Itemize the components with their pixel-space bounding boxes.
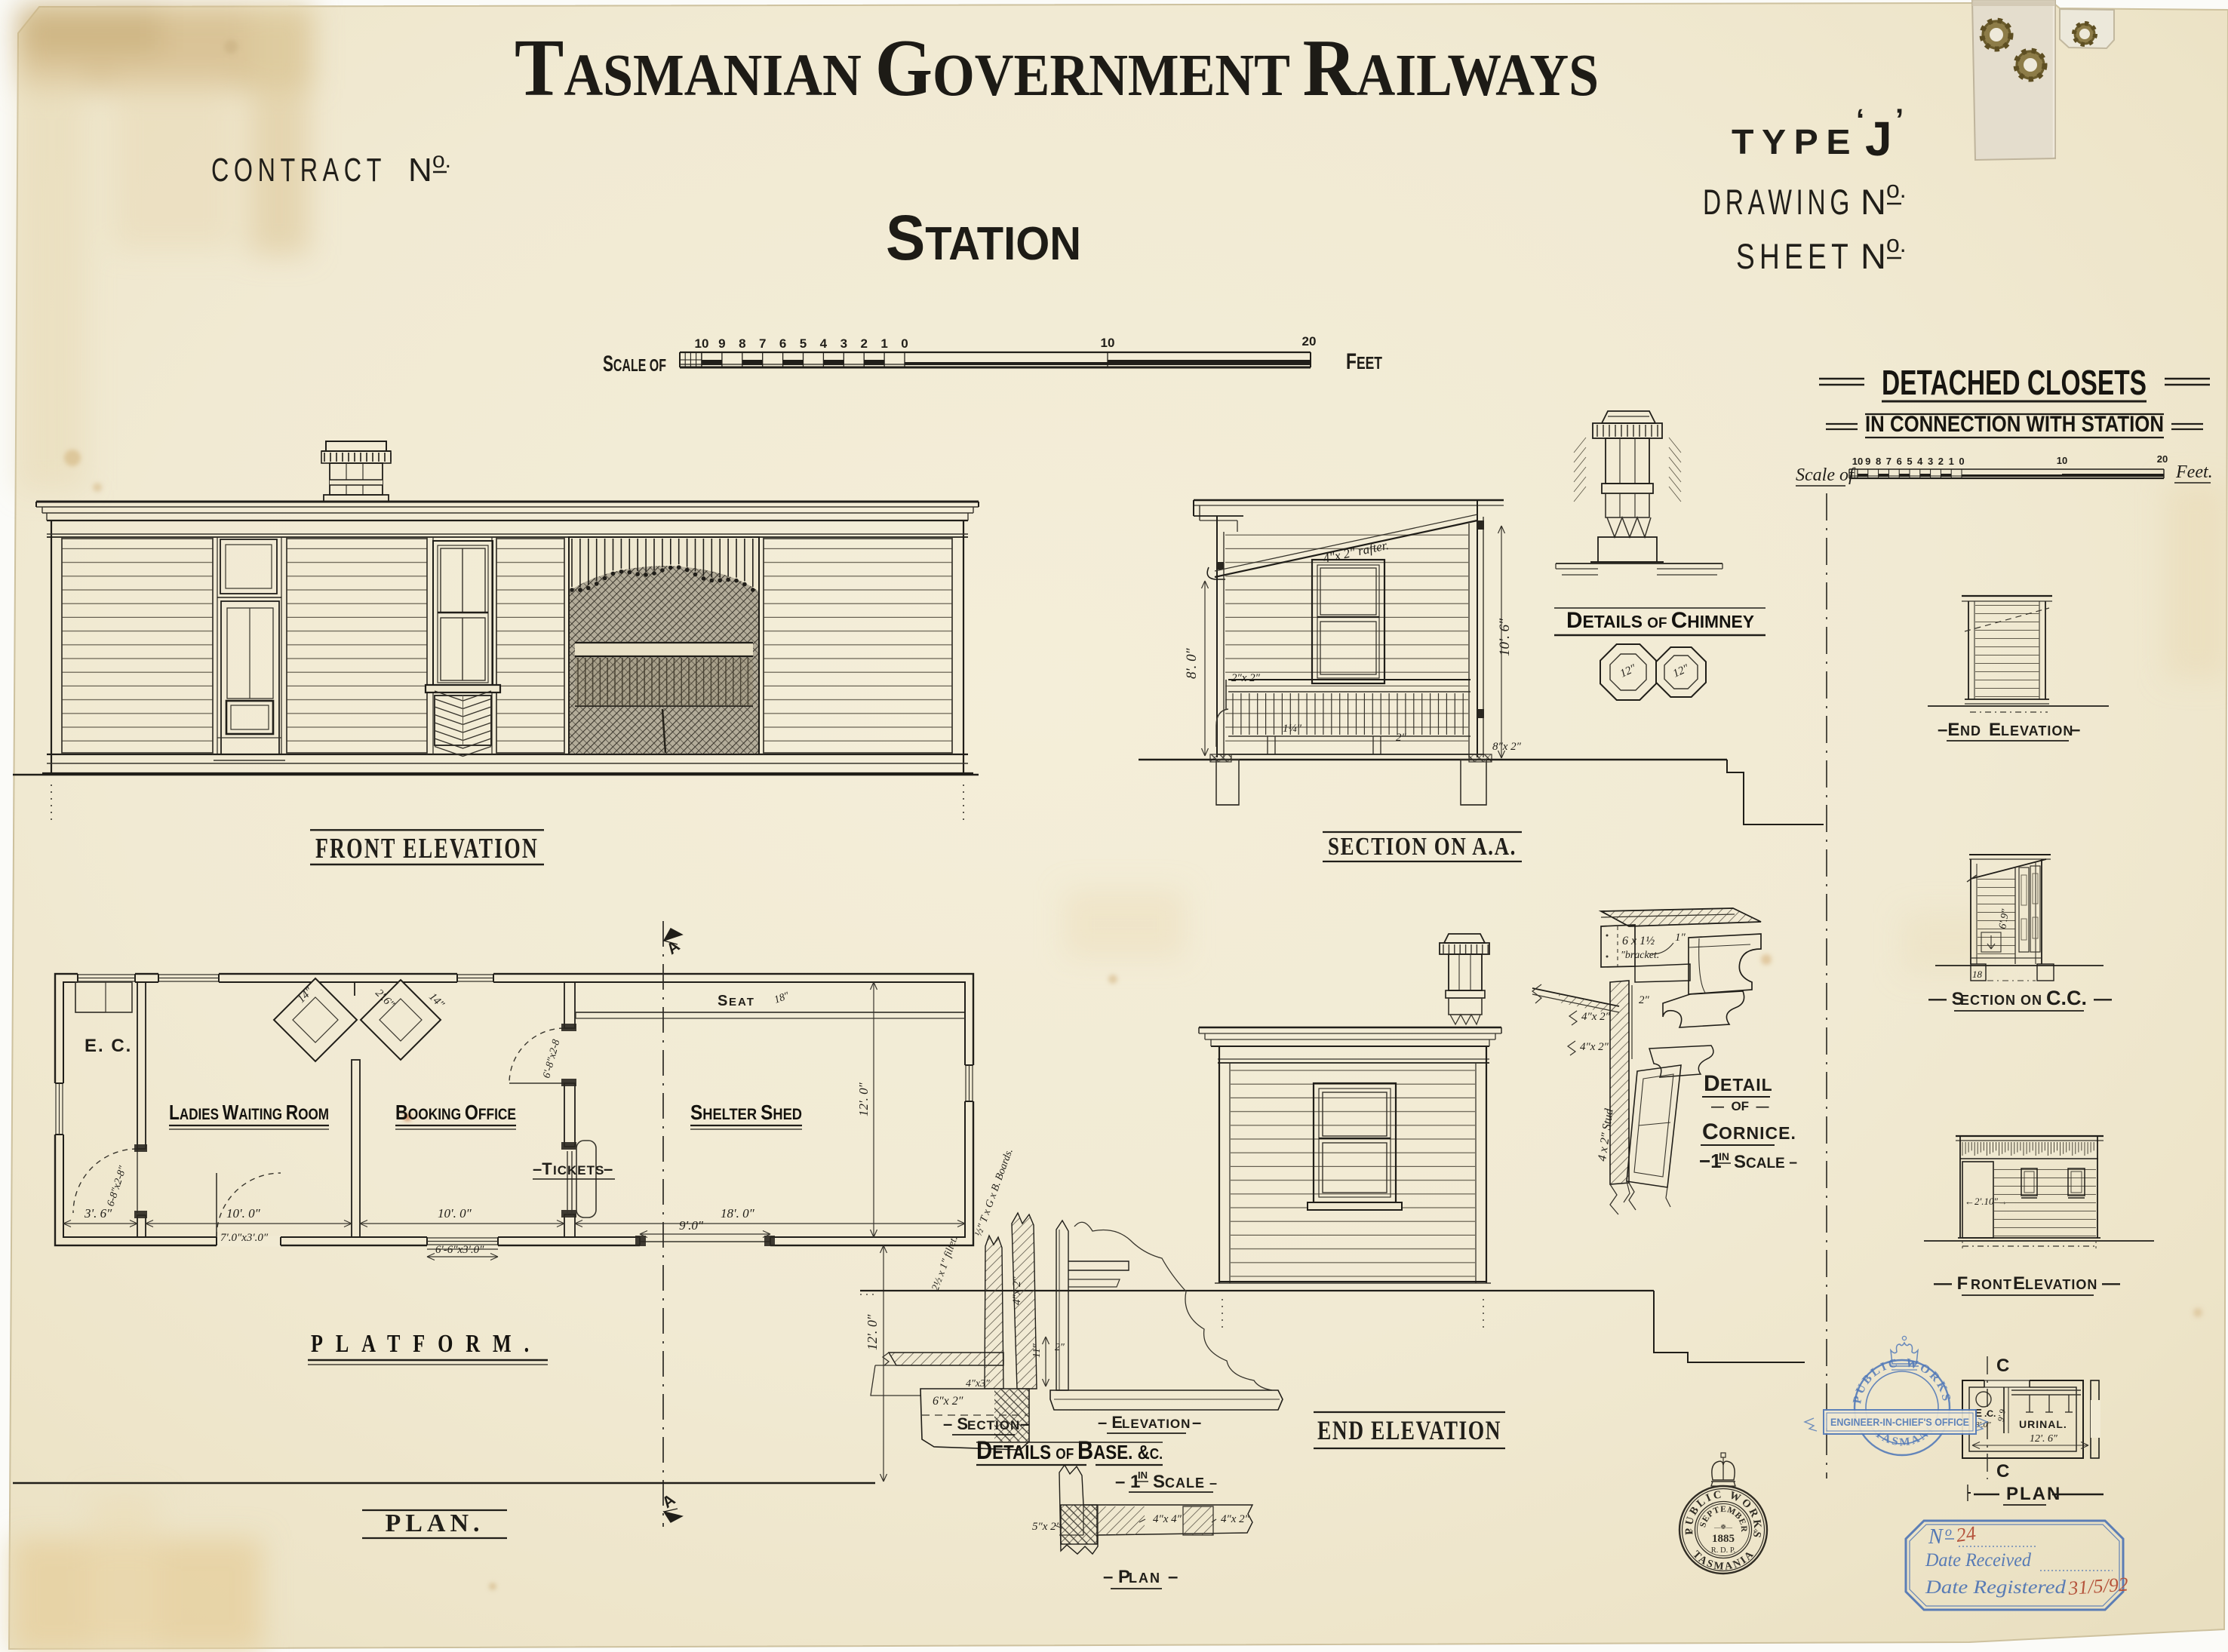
- svg-text:10: 10: [695, 336, 709, 351]
- svg-text:N: N: [408, 152, 432, 189]
- svg-text:C: C: [1996, 1356, 2009, 1376]
- svg-text:– S: – S: [943, 1414, 968, 1433]
- svg-text:ECTION ON: ECTION ON: [1960, 993, 2047, 1008]
- svg-text:LEVATION: LEVATION: [2025, 1277, 2097, 1292]
- svg-text:FRONT ELEVATION: FRONT ELEVATION: [315, 833, 539, 864]
- svg-text:—: —: [2102, 1273, 2120, 1294]
- svg-text:Feet.: Feet.: [2175, 462, 2213, 482]
- svg-text:DRAWING: DRAWING: [1703, 182, 1854, 222]
- svg-text:6: 6: [1897, 456, 1902, 467]
- svg-text:0: 0: [901, 336, 908, 351]
- svg-text:8: 8: [1876, 456, 1881, 467]
- svg-text:9: 9: [718, 336, 725, 351]
- svg-text:E. C.: E. C.: [85, 1036, 132, 1056]
- svg-text:10'. 6″: 10'. 6″: [1497, 618, 1513, 656]
- svg-text:10: 10: [1101, 336, 1115, 350]
- svg-text:4″x 2″: 4″x 2″: [1221, 1513, 1250, 1525]
- svg-text:5: 5: [1907, 456, 1912, 467]
- svg-text:6 x 1½: 6 x 1½: [1622, 935, 1655, 947]
- svg-text:–: –: [604, 1159, 613, 1178]
- svg-text:18: 18: [1972, 969, 1983, 980]
- svg-text:–: –: [2070, 720, 2080, 740]
- svg-text:Date Received: Date Received: [1925, 1550, 2031, 1571]
- svg-text:2: 2: [860, 336, 867, 351]
- svg-text:SCALE OF: SCALE OF: [603, 352, 666, 376]
- svg-text:1885: 1885: [1712, 1533, 1735, 1545]
- svg-text:–: –: [1168, 1567, 1178, 1587]
- svg-text:—❁—: —❁—: [1713, 1523, 1733, 1531]
- svg-text:7'.0″x3'.0″: 7'.0″x3'.0″: [220, 1232, 269, 1244]
- svg-text:12'. 0″: 12'. 0″: [856, 1082, 871, 1116]
- svg-text:IN: IN: [1138, 1469, 1148, 1481]
- svg-text:SHEET: SHEET: [1736, 236, 1853, 276]
- svg-text:ENGINEER-IN-CHIEF'S OFFICE: ENGINEER-IN-CHIEF'S OFFICE: [1830, 1417, 1969, 1428]
- svg-text:.C.: .C.: [1984, 1408, 1996, 1419]
- svg-text:TYPE: TYPE: [1732, 122, 1858, 161]
- svg-text:LEVATION: LEVATION: [2001, 723, 2073, 738]
- svg-text:PLAN.: PLAN.: [385, 1509, 484, 1537]
- svg-text:6'-6″x3'.0″: 6'-6″x3'.0″: [435, 1244, 484, 1256]
- svg-text:ECTION: ECTION: [967, 1418, 1020, 1432]
- svg-text:E: E: [1989, 720, 2001, 740]
- svg-text:1¼″: 1¼″: [1283, 723, 1302, 735]
- svg-text:PLATFORM.: PLATFORM.: [311, 1330, 542, 1358]
- svg-text:7: 7: [1886, 456, 1891, 467]
- svg-text:Date Registered: Date Registered: [1925, 1577, 2067, 1598]
- svg-text:10'. 0″: 10'. 0″: [438, 1206, 472, 1221]
- svg-text:–E: –E: [1938, 720, 1959, 740]
- svg-text:7: 7: [759, 336, 766, 351]
- svg-text:1″: 1″: [1675, 932, 1686, 944]
- svg-text:C: C: [1996, 1461, 2009, 1482]
- svg-text:N: N: [1861, 182, 1886, 222]
- svg-text:12'. 0″: 12'. 0″: [865, 1314, 880, 1350]
- svg-text:9'.0″: 9'.0″: [679, 1218, 704, 1233]
- svg-text:o: o: [1945, 1524, 1952, 1539]
- svg-text:4″x 4″: 4″x 4″: [1153, 1513, 1182, 1525]
- svg-text:8″x 2″: 8″x 2″: [1492, 741, 1522, 753]
- svg-text:4″x 2″: 4″x 2″: [1581, 1011, 1611, 1023]
- svg-text:IN CONNECTION WITH STATION: IN CONNECTION WITH STATION: [1865, 412, 2164, 437]
- svg-text:31/5/92: 31/5/92: [2067, 1574, 2128, 1600]
- svg-text:ICKETS: ICKETS: [553, 1163, 604, 1178]
- svg-text:N: N: [1928, 1525, 1944, 1549]
- svg-text:9: 9: [1865, 456, 1870, 467]
- svg-text:Scale of: Scale of: [1796, 465, 1856, 485]
- svg-text:10: 10: [2057, 455, 2067, 466]
- svg-text:LAN: LAN: [1129, 1571, 1161, 1586]
- svg-text:RONT: RONT: [1971, 1277, 2012, 1292]
- svg-text:o.: o.: [1886, 176, 1907, 203]
- svg-text:S: S: [1153, 1472, 1165, 1492]
- svg-text:SECTION ON A.A.: SECTION ON A.A.: [1328, 833, 1517, 861]
- svg-text:11″: 11″: [1031, 1343, 1043, 1358]
- svg-text:— F: — F: [1934, 1273, 1968, 1294]
- svg-text:3: 3: [840, 336, 847, 351]
- svg-text:✧: ✧: [1688, 1528, 1694, 1536]
- svg-text:6″x 2″: 6″x 2″: [933, 1395, 963, 1408]
- svg-text:4: 4: [1917, 456, 1923, 467]
- svg-text:J: J: [1865, 112, 1892, 166]
- svg-text:2″: 2″: [1639, 994, 1650, 1006]
- svg-text:8'. 0″: 8'. 0″: [1184, 647, 1200, 679]
- svg-text:— S: — S: [1928, 989, 1964, 1009]
- svg-text:FEET: FEET: [1346, 349, 1382, 374]
- svg-text:N: N: [1861, 236, 1886, 276]
- svg-text:—: —: [2094, 989, 2112, 1009]
- svg-text:18'. 0″: 18'. 0″: [721, 1206, 755, 1221]
- svg-text:— OF —: — OF —: [1711, 1099, 1769, 1113]
- svg-text:3: 3: [1928, 456, 1933, 467]
- svg-text:10: 10: [1852, 456, 1863, 467]
- svg-text:ORNICE.: ORNICE.: [1719, 1123, 1796, 1143]
- svg-text:4″x 2″: 4″x 2″: [1580, 1041, 1609, 1053]
- svg-text:–: –: [1192, 1413, 1201, 1432]
- svg-text:CALE −: CALE −: [1746, 1156, 1797, 1171]
- svg-text:– E: – E: [1098, 1413, 1123, 1432]
- svg-text:4: 4: [820, 336, 828, 351]
- svg-text:✧: ✧: [1753, 1528, 1759, 1536]
- svg-text:5: 5: [800, 336, 807, 351]
- svg-text:10'. 0″: 10'. 0″: [226, 1206, 261, 1221]
- svg-text:1: 1: [1949, 456, 1954, 467]
- svg-text:o.: o.: [432, 148, 451, 173]
- svg-text:CONTRACT: CONTRACT: [211, 152, 386, 189]
- svg-text:20: 20: [2157, 453, 2168, 465]
- svg-text:‘: ‘: [1856, 103, 1864, 137]
- svg-text:LEVATION: LEVATION: [1122, 1417, 1191, 1431]
- svg-text:″bracket.: ″bracket.: [1621, 950, 1659, 961]
- svg-text:ETAIL: ETAIL: [1720, 1075, 1773, 1095]
- svg-text:1: 1: [880, 336, 887, 351]
- svg-text:20: 20: [1302, 334, 1317, 349]
- svg-text:E: E: [2013, 1273, 2025, 1294]
- svg-text:’: ’: [1895, 103, 1904, 137]
- svg-text:C: C: [1702, 1119, 1719, 1144]
- svg-text:0: 0: [1959, 456, 1964, 467]
- svg-text:S: S: [1734, 1152, 1746, 1172]
- svg-text:2″x 2″: 2″x 2″: [1231, 672, 1261, 684]
- svg-text:8'.0″: 8'.0″: [1975, 1420, 1991, 1429]
- svg-text:D: D: [1704, 1071, 1720, 1096]
- svg-text:4″x3″: 4″x3″: [966, 1378, 990, 1389]
- svg-text:IN: IN: [1719, 1150, 1729, 1162]
- svg-text:ND: ND: [1960, 723, 1981, 738]
- svg-text:5″x 2″: 5″x 2″: [1032, 1521, 1062, 1533]
- svg-text:–: –: [1020, 1414, 1029, 1433]
- svg-text:4″x 2″: 4″x 2″: [1011, 1276, 1023, 1305]
- svg-text:S: S: [718, 993, 727, 1009]
- svg-text:8: 8: [739, 336, 745, 351]
- svg-text:C.C.: C.C.: [2046, 987, 2087, 1009]
- svg-text:2: 2: [1938, 456, 1944, 467]
- svg-text:END ELEVATION: END ELEVATION: [1317, 1415, 1501, 1445]
- svg-text:2″: 2″: [1396, 732, 1407, 744]
- svg-text:EAT: EAT: [729, 996, 755, 1009]
- svg-text:24: 24: [1955, 1522, 1978, 1546]
- svg-text:3'. 6″: 3'. 6″: [84, 1206, 112, 1221]
- svg-text:o.: o.: [1886, 230, 1907, 257]
- svg-text:URINAL.: URINAL.: [2019, 1418, 2067, 1430]
- svg-text:–T: –T: [533, 1159, 552, 1178]
- svg-text:R. D. P.: R. D. P.: [1711, 1546, 1735, 1555]
- svg-text:– P: – P: [1103, 1567, 1130, 1587]
- svg-text:CALE –: CALE –: [1165, 1475, 1218, 1491]
- svg-text:12'. 6″: 12'. 6″: [2030, 1433, 2057, 1445]
- svg-text:6: 6: [779, 336, 786, 351]
- svg-text:DETACHED CLOSETS: DETACHED CLOSETS: [1882, 363, 2147, 402]
